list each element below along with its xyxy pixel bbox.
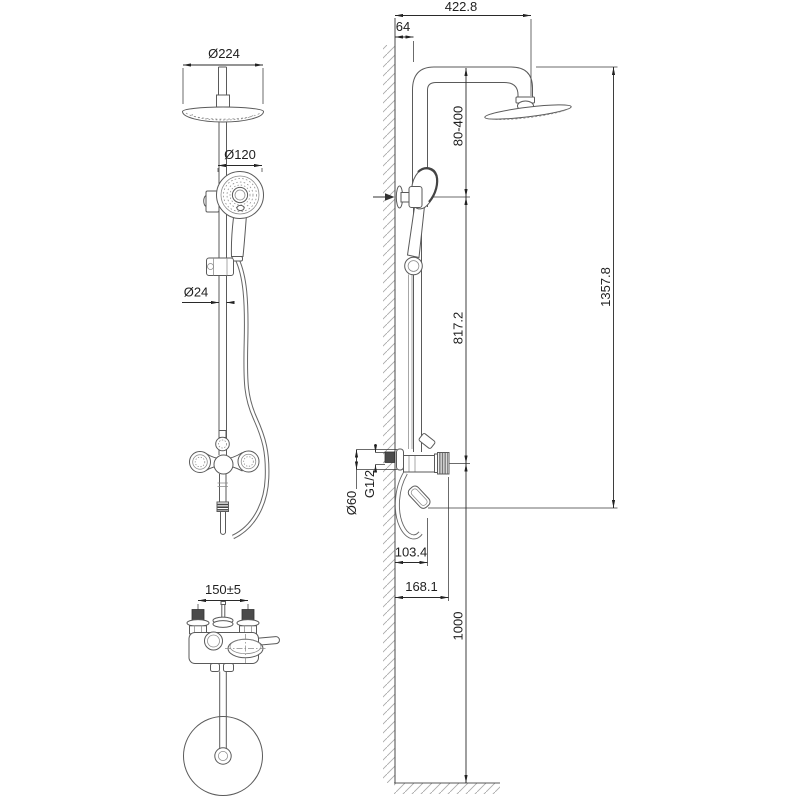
front-diverter [216,431,230,451]
front-overhead-shower [183,67,264,122]
dimension-head-offset: 422.8 [395,0,531,16]
dim-rail-height-label: 817.2 [451,312,466,345]
dim-overall-height-label: 1357.8 [598,267,613,307]
front-hand-shower [217,172,264,262]
side-spout [406,484,431,510]
plan-right-connector [237,610,259,634]
dim-connection-spacing-label: 150±5 [205,582,241,597]
dim-hand-shower-diameter-label: Ø120 [224,147,256,162]
drawing-canvas: Ø224 Ø120 [0,0,800,800]
front-view: Ø224 Ø120 [182,46,267,537]
dimension-hand-shower-diameter: Ø120 [218,147,262,172]
side-diverter [418,433,435,449]
dim-head-offset-label: 422.8 [445,0,478,14]
dim-wall-to-rail-label: 64 [396,19,410,34]
dimension-inlet-thread: G1/2 [362,444,385,498]
plan-overhead-shower [184,672,263,796]
dimension-connection-spacing: 150±5 [198,582,248,611]
dimension-rail-height: 817.2 [451,197,467,464]
dimension-spout-reach: 103.4 [395,545,428,563]
floor-section [394,783,500,794]
dim-handle-reach-label: 168.1 [405,579,438,594]
side-hose-loop [397,473,420,537]
dim-escutcheon-diameter-label: Ø60 [344,491,359,516]
dim-holder-range-label: 80-400 [451,106,466,146]
front-mixer [190,451,260,474]
shower-technical-drawing: Ø224 Ø120 [0,0,800,800]
dimension-handle-reach: 168.1 [395,579,449,598]
side-holder-hand-shower [396,168,437,275]
dim-rail-diameter-label: Ø24 [184,285,209,300]
plan-mixer-body [189,632,280,672]
dim-head-diameter-label: Ø224 [208,46,240,61]
wall-section [383,18,395,783]
plan-view: 150±5 [184,582,280,796]
dimension-overall-height: 1357.8 [598,67,614,508]
front-slider-holder [207,258,234,276]
dimension-holder-range: 80-400 [451,68,467,197]
dim-mount-height-label: 1000 [451,612,466,641]
reference-lines [414,19,618,601]
front-spout [217,474,229,534]
dim-inlet-thread-label: G1/2 [362,470,377,498]
side-view: 422.8 64 80-400 817.2 1000 [344,0,618,794]
plan-left-connector [187,610,209,634]
dimension-wall-to-rail: 64 [395,19,414,37]
plan-center-stem [213,602,233,628]
dim-spout-reach-label: 103.4 [395,545,428,560]
front-rail-pipe [219,120,227,455]
dimension-mount-height: 1000 [451,464,467,784]
front-shower-hose [233,259,267,537]
